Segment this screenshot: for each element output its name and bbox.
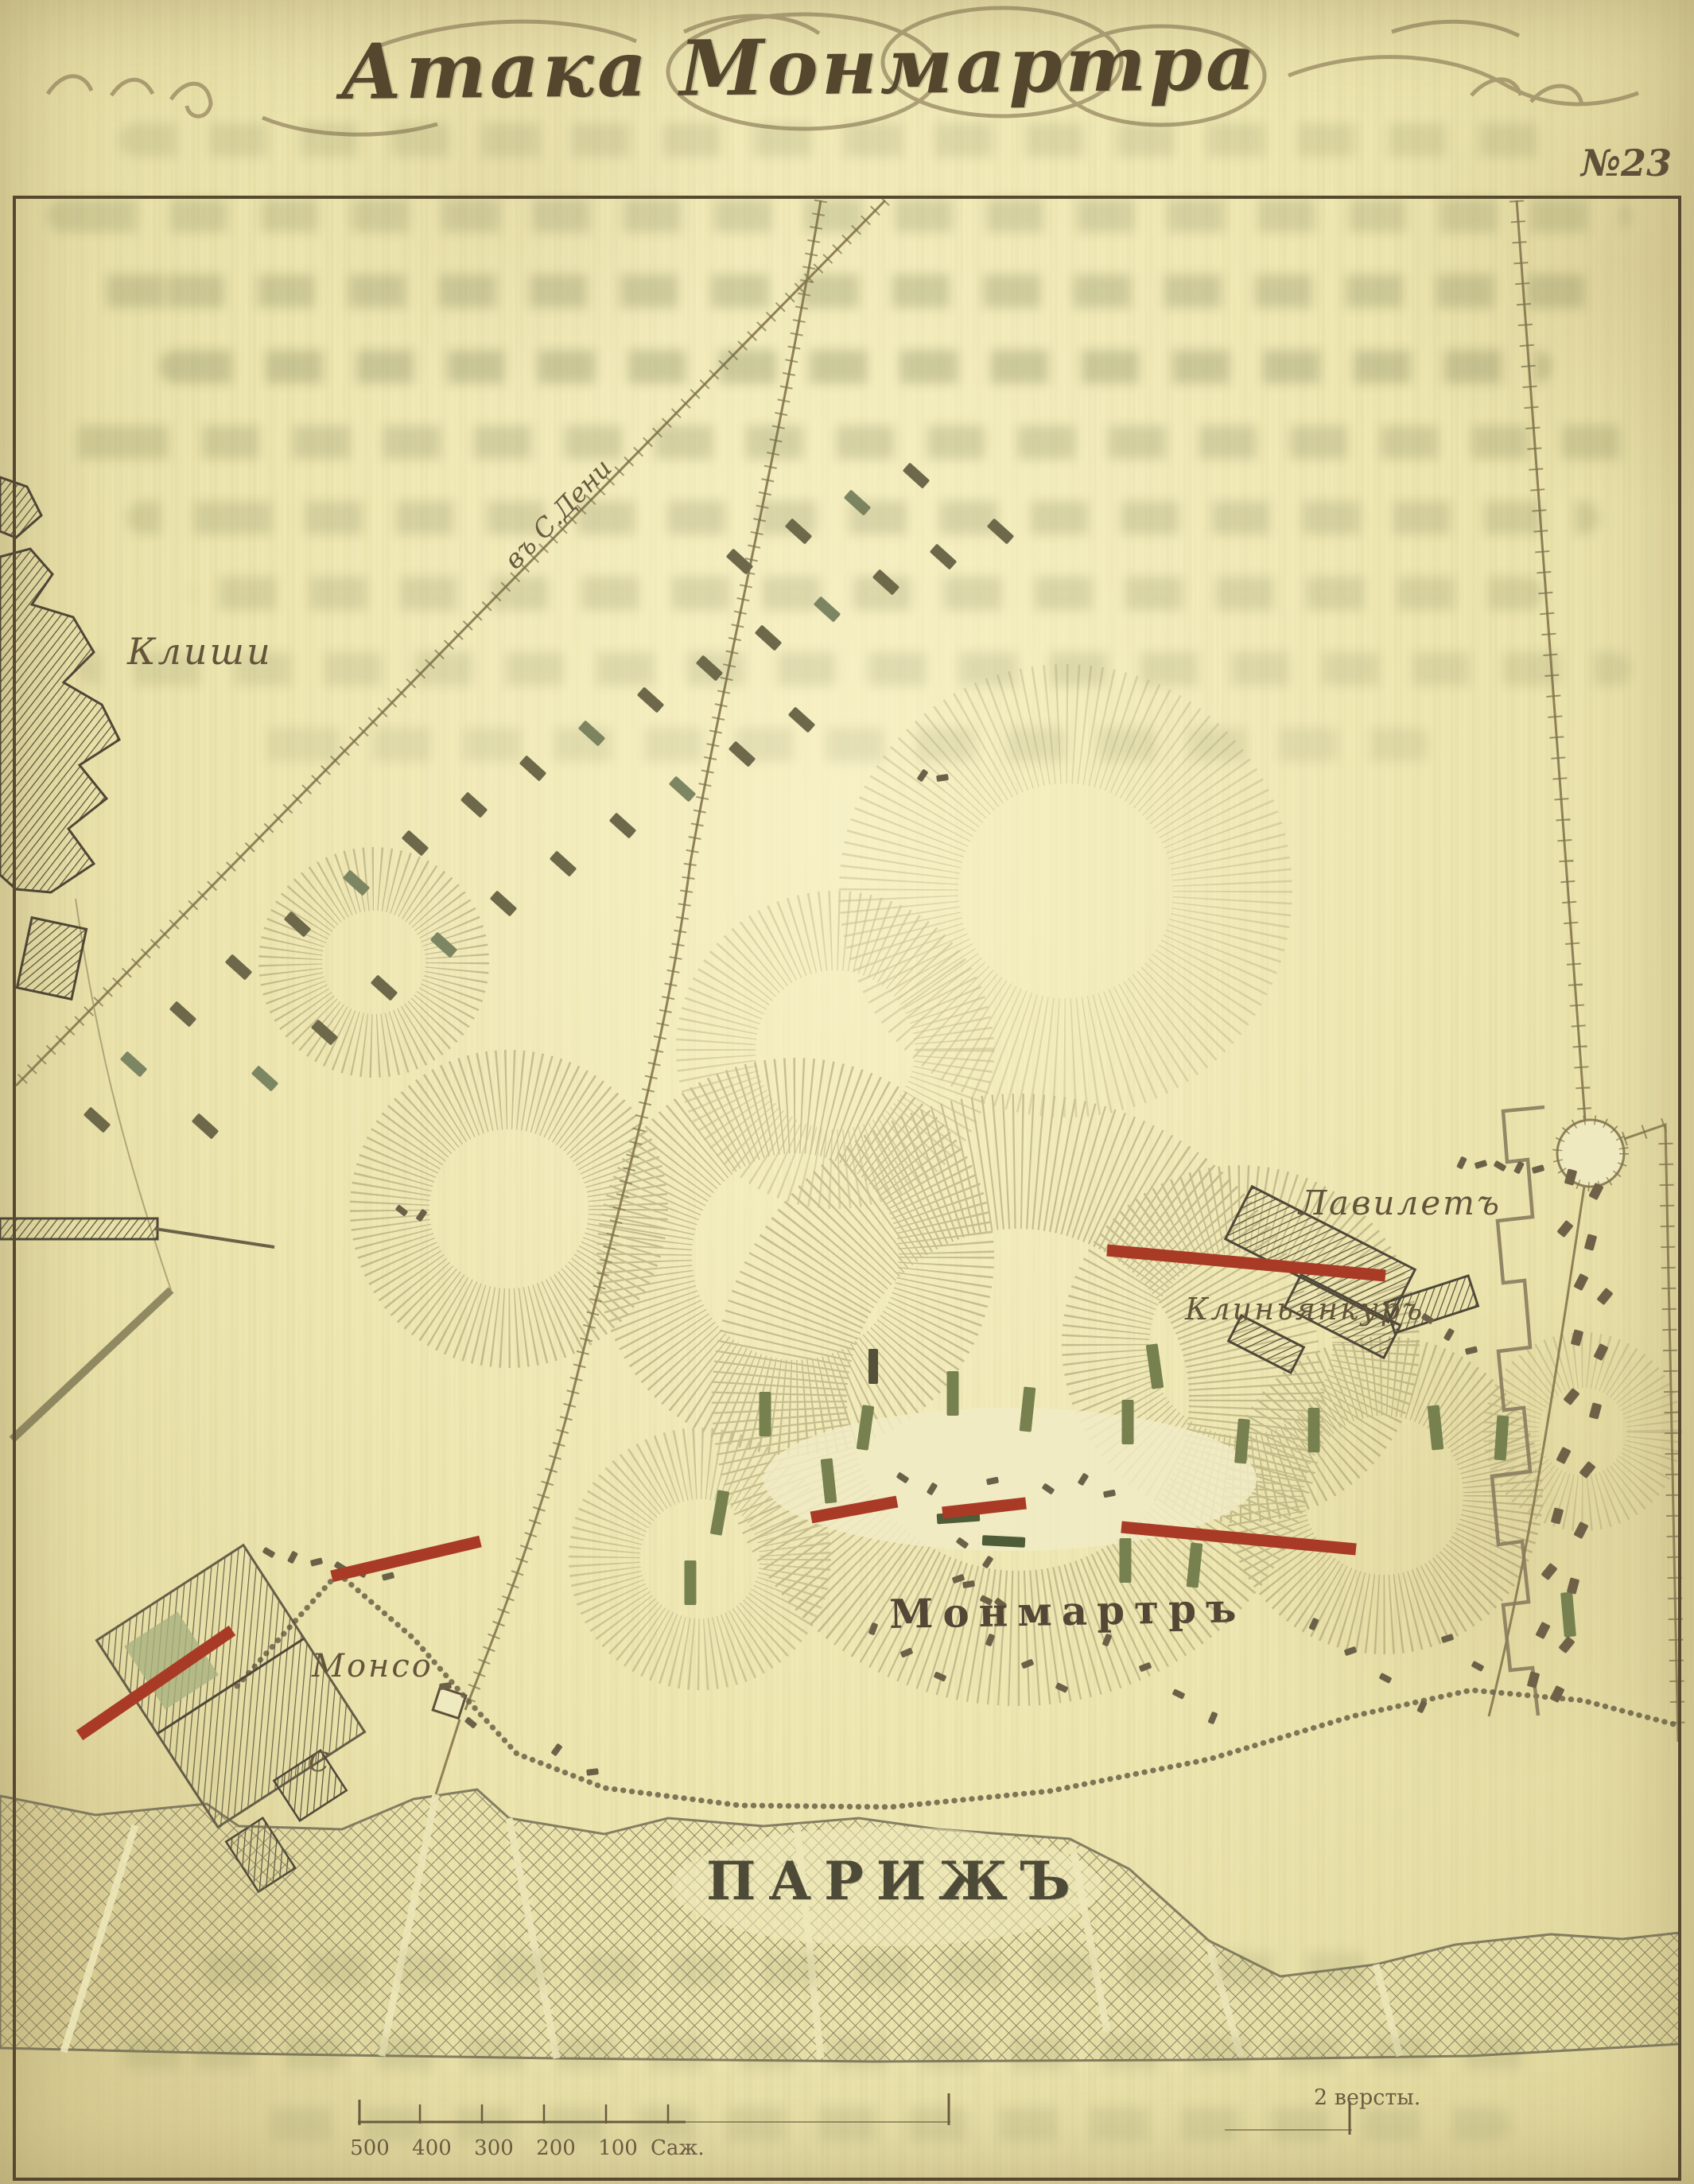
- left-building-row: [0, 1218, 274, 1247]
- label-clichy: Клиши: [127, 630, 273, 673]
- scale-number: 100: [598, 2136, 638, 2160]
- map-title: Атака Монмартра: [0, 14, 1647, 121]
- label-la-villette: Лавилетъ: [1299, 1183, 1502, 1222]
- roads: [12, 200, 1678, 1794]
- scale-number: 500: [350, 2136, 390, 2160]
- label-paris: ПАРИЖЪ: [706, 1850, 1083, 1912]
- label-c-mark: С: [309, 1747, 329, 1778]
- scale-bar: [358, 2093, 1352, 2135]
- scale-number: 300: [474, 2136, 514, 2160]
- scale-number: 200: [536, 2136, 576, 2160]
- label-clignancourt: Клиньянкуръ: [1185, 1292, 1424, 1327]
- scale-unit: Саж.: [651, 2136, 705, 2160]
- scale-versts-label: 2 версты.: [1314, 2085, 1420, 2110]
- barrier-post: [433, 1687, 466, 1718]
- label-monceau: Монсо: [312, 1648, 433, 1685]
- scale-number: 400: [412, 2136, 452, 2160]
- clichy-fort: [0, 477, 119, 999]
- label-montmartre: Монмартръ: [889, 1584, 1246, 1638]
- scanned-map-page: Атака Монмартра №23 Клиши въ С.Дени Лави…: [0, 0, 1694, 2184]
- plate-number: №23: [1581, 142, 1672, 185]
- paris-hatched-area: [0, 1790, 1680, 2062]
- marks-layer: [80, 462, 1614, 1775]
